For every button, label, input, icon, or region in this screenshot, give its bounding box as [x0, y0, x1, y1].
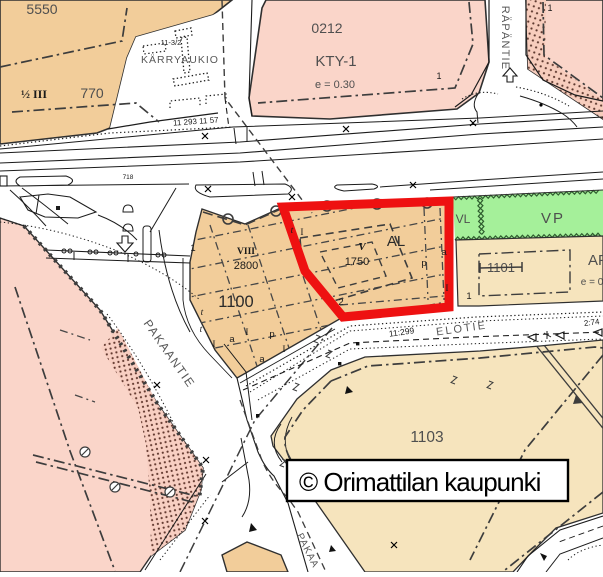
svg-text:11-3/2: 11-3/2: [161, 38, 182, 47]
svg-text:I: I: [245, 328, 248, 338]
svg-text:p: p: [269, 329, 274, 340]
svg-text:AL: AL: [387, 233, 405, 250]
svg-text:a: a: [259, 354, 265, 365]
svg-text:718: 718: [123, 174, 134, 181]
svg-text:t: t: [200, 325, 203, 335]
svg-text:I: I: [282, 345, 285, 355]
svg-text:770: 770: [80, 85, 104, 101]
svg-text:e = 0.30: e = 0.30: [315, 79, 355, 91]
svg-text:t: t: [291, 226, 294, 236]
svg-text:1: 1: [547, 3, 552, 13]
svg-text:a: a: [229, 334, 235, 345]
svg-text:VP: VP: [541, 210, 565, 227]
svg-text:I: I: [300, 228, 303, 238]
svg-text:© Orimattilan kaupunki: © Orimattilan kaupunki: [299, 467, 541, 497]
svg-text:1100: 1100: [218, 293, 253, 311]
svg-text:1750: 1750: [345, 256, 369, 268]
svg-text:5550: 5550: [26, 1, 57, 17]
svg-text:VIII: VIII: [237, 247, 255, 257]
svg-text:e = 0: e = 0: [581, 277, 603, 288]
svg-text:0212: 0212: [311, 20, 342, 36]
svg-text:½ III: ½ III: [21, 87, 47, 101]
svg-text:I: I: [212, 340, 215, 350]
svg-text:RÄPÄNTIE: RÄPÄNTIE: [499, 6, 511, 71]
svg-text:2: 2: [338, 297, 343, 308]
svg-text:AP: AP: [588, 252, 603, 269]
svg-text:2800: 2800: [234, 260, 258, 272]
svg-text:p: p: [421, 258, 426, 269]
svg-text:KÄRRYAUKIO: KÄRRYAUKIO: [141, 54, 219, 66]
svg-text:1103: 1103: [410, 429, 443, 446]
svg-text:VL: VL: [456, 212, 471, 226]
svg-text:1: 1: [466, 291, 471, 302]
svg-text:KTY-1: KTY-1: [315, 53, 356, 70]
svg-text:I: I: [445, 284, 448, 294]
svg-text:1: 1: [436, 71, 441, 81]
svg-text:1: 1: [190, 243, 195, 254]
svg-text:a: a: [441, 247, 447, 258]
svg-text:t: t: [201, 308, 204, 318]
